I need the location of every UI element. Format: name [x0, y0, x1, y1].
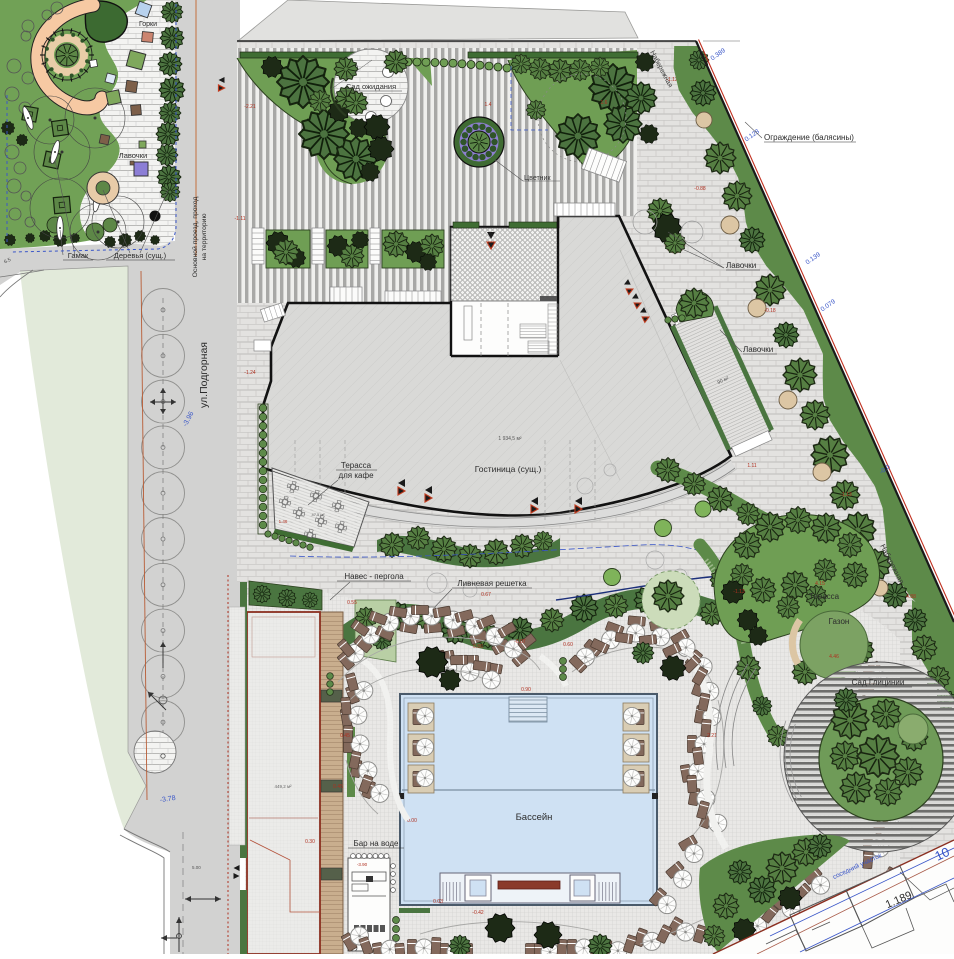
svg-text:-1.13: -1.13 [840, 492, 852, 498]
svg-text:-1.11: -1.11 [234, 216, 245, 222]
svg-text:4.15: 4.15 [815, 581, 825, 587]
svg-text:Бар на воде: Бар на воде [353, 839, 399, 848]
svg-text:0.55: 0.55 [347, 600, 357, 606]
svg-text:Терасса: Терасса [341, 461, 372, 470]
svg-text:-1.13: -1.13 [733, 589, 745, 595]
svg-text:Гостиница (сущ.): Гостиница (сущ.) [475, 464, 542, 474]
svg-text:0.67: 0.67 [481, 592, 491, 598]
svg-text:Горки: Горки [139, 21, 157, 28]
svg-text:0.86: 0.86 [473, 644, 483, 650]
svg-text:-0.42: -0.42 [472, 910, 484, 916]
svg-text:0.30: 0.30 [305, 839, 315, 845]
svg-text:1.4: 1.4 [485, 102, 492, 108]
svg-text:на территорию: на территорию [201, 213, 208, 260]
svg-text:5.00: 5.00 [192, 865, 201, 870]
svg-text:449,2 м²: 449,2 м² [274, 784, 292, 789]
svg-text:для кафе: для кафе [338, 471, 374, 480]
svg-text:47,5 м²: 47,5 м² [312, 512, 326, 517]
svg-text:Терасса: Терасса [809, 592, 840, 601]
svg-text:0.60: 0.60 [563, 642, 573, 648]
svg-text:Гамак: Гамак [68, 251, 89, 260]
svg-text:-0.88: -0.88 [694, 186, 706, 192]
svg-text:-3.90: -3.90 [357, 862, 368, 867]
svg-text:Лавочки: Лавочки [743, 345, 773, 354]
svg-text:-0.07: -0.07 [514, 639, 526, 645]
svg-text:0.45: 0.45 [333, 784, 343, 790]
svg-text:0.45: 0.45 [340, 733, 350, 739]
svg-text:1.46: 1.46 [279, 519, 288, 524]
svg-text:4.88: 4.88 [906, 594, 916, 600]
svg-text:0.90: 0.90 [521, 687, 531, 693]
svg-text:Навес - пергола: Навес - пергола [344, 572, 404, 581]
svg-text:Сад ожидания: Сад ожидания [346, 82, 396, 91]
svg-text:Лавочки: Лавочки [119, 151, 147, 160]
svg-text:Основной проезд, проход: Основной проезд, проход [191, 197, 199, 278]
svg-text:Газон: Газон [829, 617, 850, 626]
svg-text:-2.21: -2.21 [244, 104, 256, 110]
svg-text:Сад Глицинии: Сад Глицинии [852, 678, 905, 687]
svg-text:Ограждение (балясины): Ограждение (балясины) [764, 133, 854, 142]
svg-text:1.6: 1.6 [601, 100, 608, 106]
svg-text:1 934,5 м²: 1 934,5 м² [498, 436, 522, 442]
svg-text:Бассейн: Бассейн [516, 812, 553, 823]
svg-text:Ливневая решетка: Ливневая решетка [457, 579, 527, 588]
svg-text:2.21: 2.21 [707, 733, 717, 739]
svg-text:0.03: 0.03 [433, 899, 443, 905]
svg-text:1.11: 1.11 [747, 463, 757, 469]
svg-text:4.46: 4.46 [829, 654, 839, 660]
svg-text:-1.24: -1.24 [244, 370, 256, 376]
svg-text:Лавочки: Лавочки [726, 261, 756, 270]
svg-text:-0.18: -0.18 [764, 308, 776, 314]
svg-text:ул.Подгорная: ул.Подгорная [198, 342, 210, 408]
